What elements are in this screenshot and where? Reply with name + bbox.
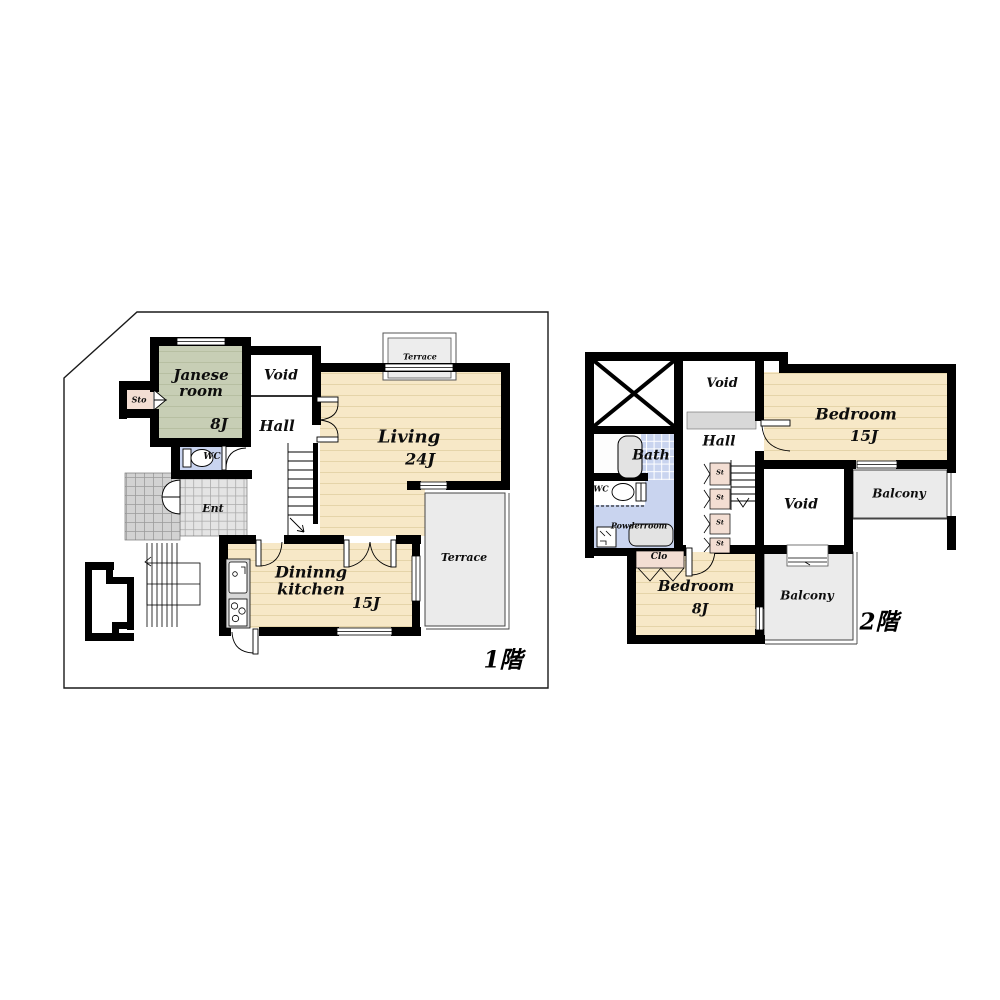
window [412, 556, 420, 601]
window [177, 338, 225, 345]
window [385, 364, 453, 371]
label-st-4: St [716, 540, 724, 547]
window [420, 482, 447, 489]
cross-void-icon [593, 360, 675, 427]
label-bedroom8: Bedroom [658, 578, 735, 594]
stove-icon [229, 599, 247, 626]
label-japanese-room: Janese room [170, 367, 232, 399]
label-hall-f1: Hall [259, 418, 294, 434]
label-living-size: 24J [405, 450, 435, 467]
label-terrace-east: Terrace [441, 552, 487, 564]
label-void-f2-north: Void [706, 377, 738, 391]
stairs-interior-f2 [731, 460, 755, 510]
label-st-1: St [716, 469, 724, 476]
window [337, 628, 392, 635]
label-powderroom: Powderroom [611, 522, 667, 531]
window [756, 607, 763, 630]
label-wc-f2: WC [593, 485, 608, 494]
label-st-3: St [716, 519, 724, 526]
label-void-f1: Void [264, 368, 298, 383]
label-void-f2-center: Void [784, 497, 818, 512]
floor2-title: 2階 [859, 611, 898, 636]
stairs-arrow [737, 498, 749, 507]
label-dining-kitchen: Dininng kitchen [265, 564, 357, 599]
label-dining-kitchen-size: 15J [352, 595, 380, 611]
label-balcony-east: Balcony [872, 488, 925, 501]
sink-icon [229, 562, 247, 593]
label-clo: Clo [651, 553, 668, 563]
hall2-closet-strip [687, 412, 756, 429]
label-st-2: St [716, 494, 724, 501]
label-hall-f2: Hall [703, 434, 736, 449]
kitchen-counter [226, 559, 250, 628]
label-bedroom8-size: 8J [692, 602, 708, 617]
floor1-title: 1階 [483, 649, 522, 674]
floor1-plan [64, 312, 548, 688]
label-sto: Sto [132, 396, 147, 405]
label-bedroom15: Bedroom [815, 405, 897, 422]
balcony-step-window [787, 545, 828, 566]
label-japanese-room-size: 8J [210, 416, 228, 432]
label-wc-f1: WC [203, 453, 220, 463]
label-bedroom15-size: 15J [850, 428, 878, 444]
label-terrace-north: Terrace [403, 353, 437, 362]
label-bath: Bath [632, 448, 670, 463]
label-balcony-south: Balcony [780, 590, 833, 603]
label-living: Living [378, 427, 440, 446]
floor-plan-page: Janese room 8J Sto Void Hall WC Ent Livi… [0, 0, 1000, 1000]
floor-plan-drawing [0, 0, 1000, 1000]
label-ent: Ent [202, 503, 223, 515]
fold-door-marks [704, 464, 710, 552]
window [857, 461, 897, 468]
